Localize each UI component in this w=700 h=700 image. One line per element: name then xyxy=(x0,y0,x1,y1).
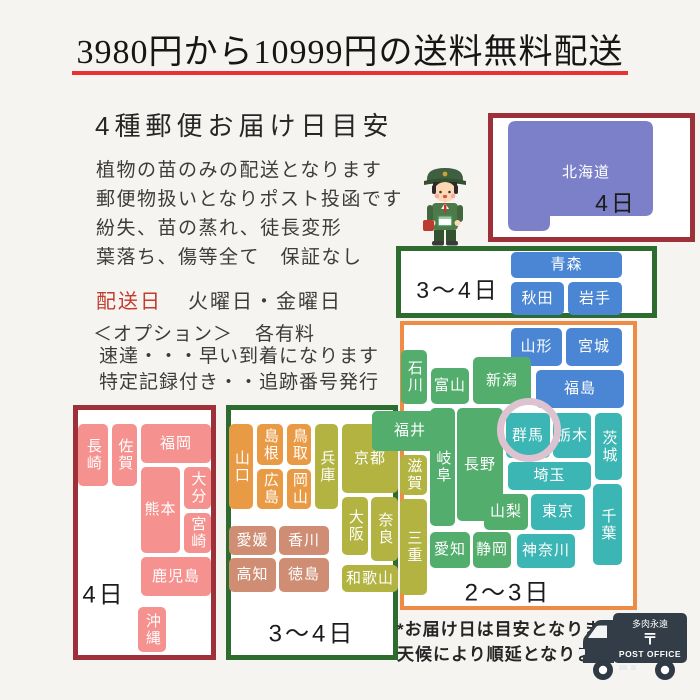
prefecture-tile-mie: 三重 xyxy=(400,499,427,595)
prefecture-tile-miyagi: 宮城 xyxy=(566,328,622,366)
prefecture-tile-yamaguchi: 山口 xyxy=(229,424,253,509)
prefecture-tile-fukuoka: 福岡 xyxy=(141,424,211,463)
delivery-days-label-tohoku: 3〜4日 xyxy=(416,271,500,305)
prefecture-tile-kanagawa: 神奈川 xyxy=(517,534,575,568)
prefecture-tile-tokyo: 東京 xyxy=(531,494,585,530)
prefecture-tile-nara: 奈良 xyxy=(371,497,398,561)
prefecture-tile-chiba: 千葉 xyxy=(593,484,622,565)
shipping-info-page: 3980円から10999円の送料無料配送 4種郵便お届け日目安 植物の苗のみの配… xyxy=(0,0,700,700)
prefecture-tile-kochi: 高知 xyxy=(229,558,276,592)
prefecture-tile-ehime: 愛媛 xyxy=(229,526,276,555)
gunma-highlight-ring xyxy=(497,398,561,462)
prefecture-tile-ishikawa: 石川 xyxy=(401,350,427,404)
prefecture-tile-okayama: 岡山 xyxy=(287,469,311,509)
delivery-days-label-west: 3〜4日 xyxy=(269,614,356,649)
prefecture-tile-tottori: 鳥取 xyxy=(287,424,311,465)
prefecture-tile-oita: 大分 xyxy=(184,467,211,509)
prefecture-tile-shiga: 滋賀 xyxy=(400,455,427,495)
prefecture-tile-nagasaki: 長崎 xyxy=(78,424,108,486)
prefecture-tile-aichi: 愛知 xyxy=(430,532,470,568)
prefecture-tile-saitama: 埼玉 xyxy=(508,462,591,490)
prefecture-tile-toyama: 富山 xyxy=(431,368,469,404)
prefecture-tile-tokushima: 徳島 xyxy=(279,558,329,592)
prefecture-tile-aomori: 青森 xyxy=(511,252,622,278)
prefecture-tile-fukushima: 福島 xyxy=(536,370,624,408)
prefecture-tile-hyogo: 兵庫 xyxy=(315,424,338,509)
prefecture-tile-fukui: 福井 xyxy=(372,411,448,451)
prefecture-tile-iwate: 岩手 xyxy=(568,282,622,315)
prefecture-tile-hiroshima: 広島 xyxy=(257,469,283,509)
delivery-days-label-hokkaido: 4日 xyxy=(595,184,637,218)
japan-delivery-map: 青森秋田岩手山形宮城福島石川富山新潟長野岐阜山梨愛知静岡群馬栃木茨城埼玉東京神奈… xyxy=(0,0,700,700)
delivery-days-label-kyushu: 4日 xyxy=(82,575,125,610)
post-truck-icon: 多肉永遠 〒 POST OFFICE xyxy=(573,608,691,686)
prefecture-tile-wakayama: 和歌山 xyxy=(342,565,398,592)
prefecture-tile-shizuoka: 静岡 xyxy=(473,532,511,568)
delivery-days-label-honshu: 2〜3日 xyxy=(465,573,552,608)
truck-post-office-text: POST OFFICE xyxy=(619,649,681,659)
prefecture-tile-niigata: 新潟 xyxy=(473,357,531,404)
truck-postal-mark: 〒 xyxy=(642,631,657,648)
prefecture-tile-kagoshima: 鹿児島 xyxy=(141,557,211,596)
prefecture-tile-yamanashi: 山梨 xyxy=(484,494,528,530)
prefecture-tile-ibaraki: 茨城 xyxy=(595,413,622,480)
prefecture-tile-shimane: 島根 xyxy=(257,424,283,465)
prefecture-tile-saga: 佐賀 xyxy=(112,424,137,486)
prefecture-tile-miyazaki: 宮崎 xyxy=(184,513,211,553)
prefecture-tile-kagawa: 香川 xyxy=(279,526,329,555)
truck-shop-name: 多肉永遠 xyxy=(632,618,668,629)
prefecture-tile-okinawa: 沖縄 xyxy=(138,607,166,652)
prefecture-tile-akita: 秋田 xyxy=(511,282,564,315)
prefecture-tile-osaka: 大阪 xyxy=(342,497,368,555)
prefecture-tile-kumamoto: 熊本 xyxy=(141,467,180,553)
